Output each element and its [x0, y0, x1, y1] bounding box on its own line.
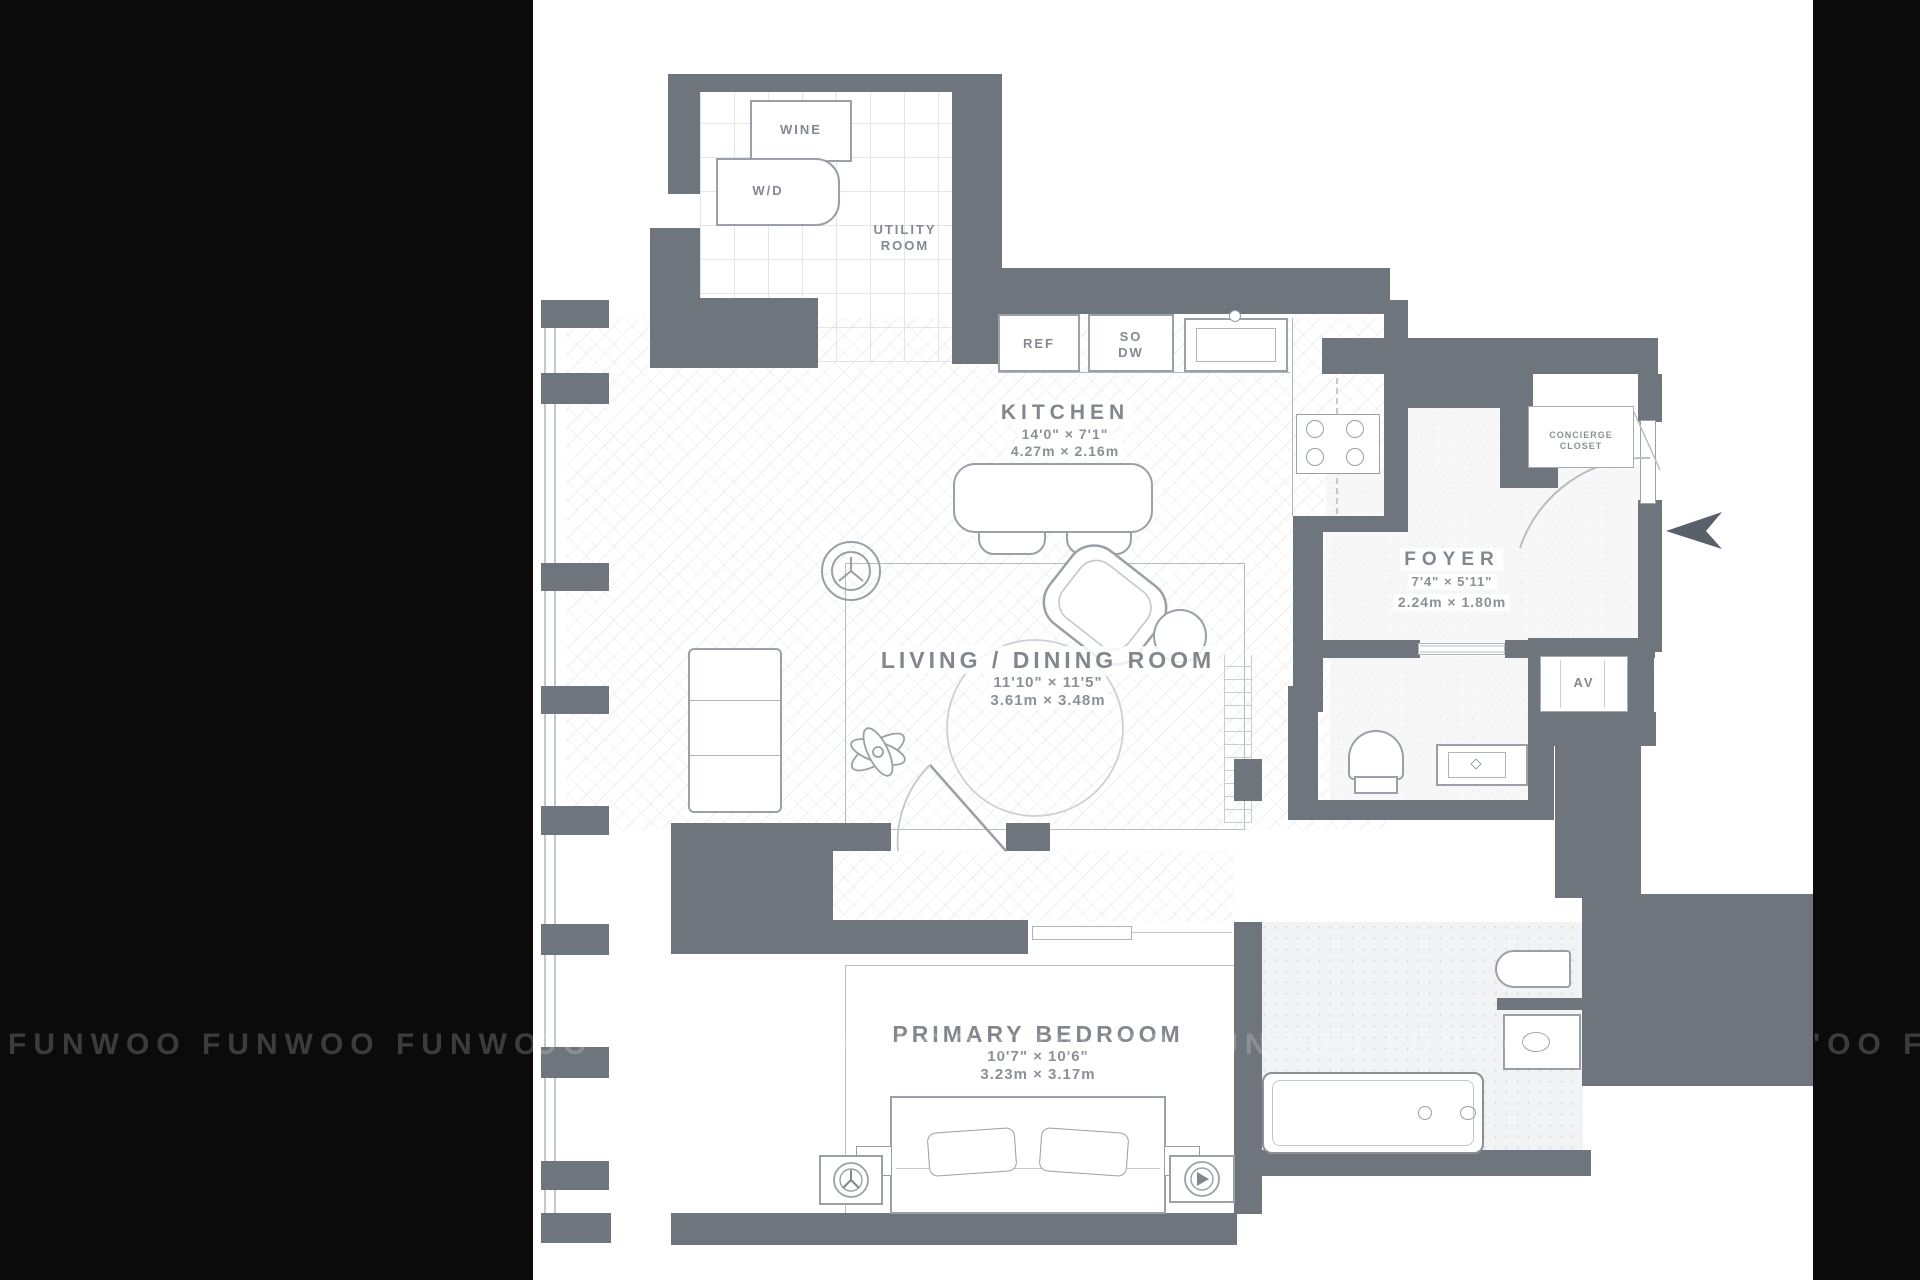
entry-arrow-layer — [0, 0, 1920, 1280]
floorplan-canvas: WINE W/D UTILITY ROOM REF SO DW KITCHEN … — [0, 0, 1920, 1280]
entry-arrow-icon — [1666, 512, 1722, 549]
